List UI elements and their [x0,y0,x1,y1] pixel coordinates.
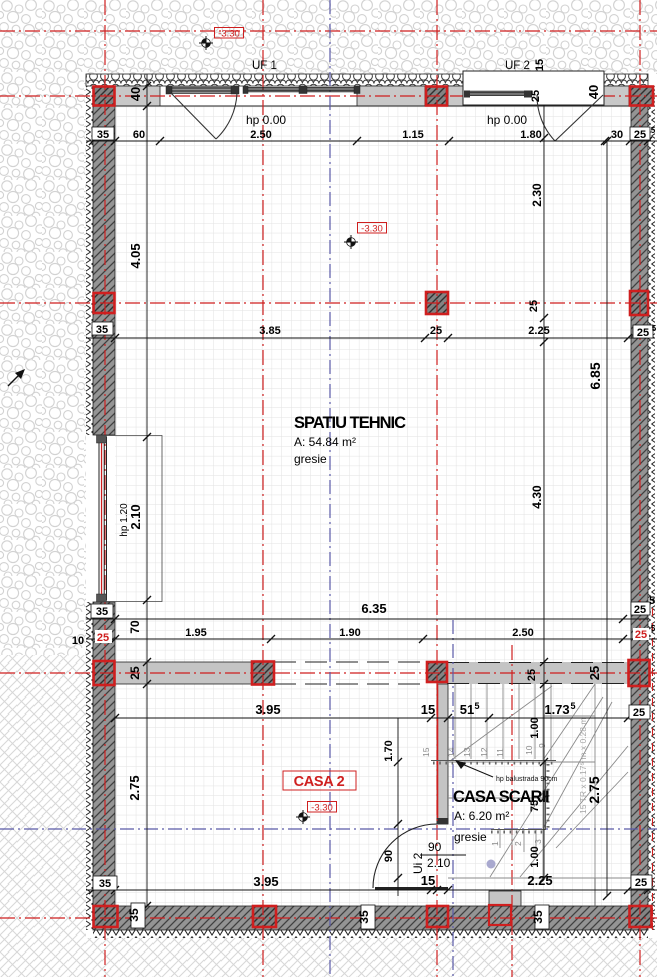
svg-text:15: 15 [534,59,546,71]
svg-text:2.50: 2.50 [512,627,533,639]
svg-text:90: 90 [383,850,395,862]
svg-text:40: 40 [586,85,601,99]
svg-text:1.15: 1.15 [402,129,423,141]
svg-text:15: 15 [421,873,435,888]
svg-text:1.90: 1.90 [339,627,360,639]
svg-text:40: 40 [128,87,143,101]
svg-text:4.05: 4.05 [128,243,143,268]
svg-text:11: 11 [495,748,505,757]
svg-text:1.00: 1.00 [529,846,541,867]
svg-text:25: 25 [530,90,542,102]
svg-text:hp 1.20: hp 1.20 [119,503,130,537]
svg-text:15: 15 [421,747,431,757]
svg-text:5: 5 [652,324,657,333]
svg-text:10: 10 [72,635,84,647]
svg-text:9: 9 [537,743,547,748]
svg-text:5: 5 [649,595,655,607]
svg-text:25: 25 [430,325,442,337]
svg-text:1.73: 1.73 [544,702,569,717]
svg-text:-3.30: -3.30 [361,224,383,235]
svg-text:25: 25 [635,877,647,889]
svg-text:2.75: 2.75 [127,775,142,800]
svg-text:CASA 2: CASA 2 [294,774,345,790]
svg-text:4.30: 4.30 [530,485,544,509]
svg-text:35: 35 [99,878,111,890]
svg-text:35: 35 [127,908,141,922]
svg-text:25: 25 [634,604,646,616]
svg-text:SPATIU TEHNIC: SPATIU TEHNIC [294,414,406,432]
svg-text:25: 25 [526,669,538,681]
svg-text:35: 35 [357,910,371,924]
svg-text:35: 35 [531,910,545,924]
svg-text:hp 0.00: hp 0.00 [487,113,527,127]
svg-text:30: 30 [611,129,623,141]
svg-text:UF 2: UF 2 [505,60,530,72]
svg-text:2: 2 [513,841,523,846]
svg-text:75: 75 [529,800,541,812]
svg-text:90: 90 [428,840,442,854]
svg-text:25: 25 [635,629,647,641]
svg-text:35: 35 [97,129,109,141]
svg-text:14: 14 [446,747,456,757]
svg-text:35: 35 [96,324,108,336]
svg-text:25: 25 [128,666,142,680]
svg-text:51: 51 [460,702,474,717]
svg-text:UF 1: UF 1 [252,60,277,72]
svg-text:10: 10 [524,745,534,755]
svg-text:60: 60 [133,129,145,141]
svg-text:Ui 2: Ui 2 [411,852,425,874]
svg-text:3.95: 3.95 [255,702,280,717]
svg-text:5: 5 [651,126,656,135]
svg-text:-3.30: -3.30 [218,29,240,40]
svg-text:5: 5 [570,701,575,711]
svg-text:25: 25 [97,632,109,644]
svg-text:15: 15 [421,702,435,717]
svg-text:70: 70 [128,620,142,634]
svg-text:6.35: 6.35 [361,601,386,616]
svg-text:13: 13 [462,747,472,757]
svg-text:3: 3 [533,839,543,844]
svg-text:2.25: 2.25 [528,325,549,337]
svg-text:-3.30: -3.30 [311,803,333,814]
svg-text:2.10: 2.10 [427,856,451,870]
svg-text:25: 25 [587,666,602,680]
svg-text:1.70: 1.70 [383,740,395,761]
svg-text:A: 54.84 m²: A: 54.84 m² [294,435,356,449]
svg-text:2.25: 2.25 [527,873,552,888]
svg-text:5: 5 [474,701,479,711]
svg-text:1.80: 1.80 [520,129,541,141]
svg-text:35: 35 [96,606,108,618]
svg-text:1: 1 [490,841,500,846]
svg-text:3.85: 3.85 [259,325,280,337]
svg-text:1.00: 1.00 [529,717,541,738]
svg-text:2.10: 2.10 [128,504,143,529]
svg-text:A: 6.20 m²: A: 6.20 m² [454,809,509,823]
svg-text:5: 5 [651,624,656,633]
svg-text:25: 25 [634,129,646,141]
svg-text:25: 25 [633,707,645,719]
svg-text:gresie: gresie [294,452,327,466]
svg-text:2.75: 2.75 [586,776,602,803]
svg-text:6.85: 6.85 [587,362,603,389]
svg-text:gresie: gresie [454,830,487,844]
svg-text:hp balustrada 90cm: hp balustrada 90cm [496,776,558,783]
svg-text:1.95: 1.95 [185,627,206,639]
svg-text:25: 25 [637,327,649,339]
svg-text:3.95: 3.95 [253,874,278,889]
svg-text:2.30: 2.30 [530,183,544,207]
svg-text:25: 25 [528,300,540,312]
svg-text:hp 0.00: hp 0.00 [246,113,286,127]
svg-text:2.50: 2.50 [250,129,271,141]
svg-text:12: 12 [479,747,489,757]
